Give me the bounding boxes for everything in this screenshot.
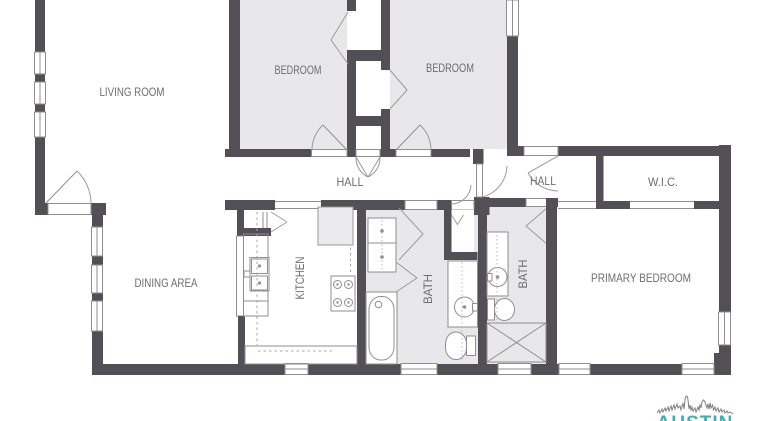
svg-text:BEDROOM: BEDROOM — [275, 63, 322, 77]
svg-text:HALL: HALL — [530, 174, 556, 188]
svg-text:HALL: HALL — [337, 175, 364, 189]
svg-text:BATH: BATH — [421, 274, 435, 304]
svg-text:BEDROOM: BEDROOM — [426, 61, 474, 75]
svg-text:LIVING ROOM: LIVING ROOM — [100, 85, 165, 99]
svg-text:PRIMARY BEDROOM: PRIMARY BEDROOM — [591, 271, 691, 285]
svg-text:KITCHEN: KITCHEN — [293, 257, 307, 300]
svg-text:BATH: BATH — [516, 260, 530, 289]
svg-text:W.I.C.: W.I.C. — [648, 175, 678, 189]
svg-text:AUSTIN: AUSTIN — [657, 413, 734, 421]
svg-text:DINING AREA: DINING AREA — [135, 276, 198, 290]
